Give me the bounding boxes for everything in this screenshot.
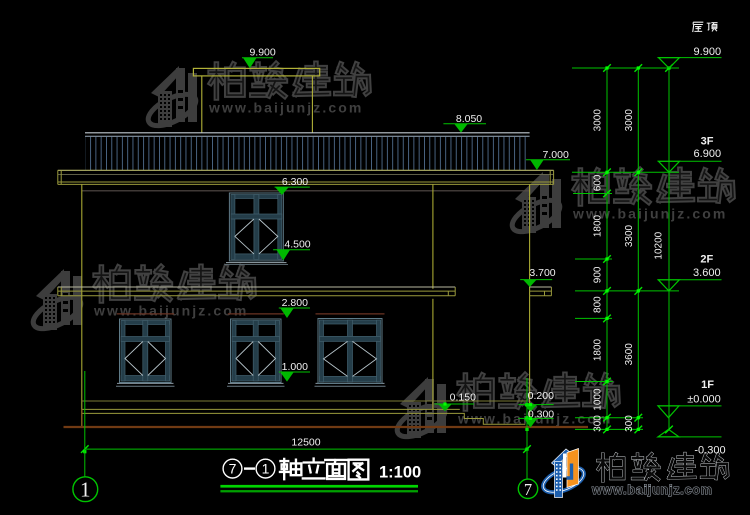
svg-text:6.900: 6.900 xyxy=(694,148,722,160)
svg-text:300: 300 xyxy=(624,415,635,432)
svg-text:9.900: 9.900 xyxy=(249,46,275,58)
svg-text:900: 900 xyxy=(593,266,604,283)
svg-text:2F: 2F xyxy=(700,254,713,266)
svg-text:1: 1 xyxy=(262,461,270,477)
svg-text:2.800: 2.800 xyxy=(282,297,308,309)
svg-text:3600: 3600 xyxy=(624,343,635,366)
svg-text:7: 7 xyxy=(229,461,237,477)
svg-text:1:100: 1:100 xyxy=(379,463,421,481)
svg-text:3.700: 3.700 xyxy=(529,267,555,279)
svg-text:3F: 3F xyxy=(701,136,714,148)
svg-text:3000: 3000 xyxy=(624,109,635,132)
svg-text:1.000: 1.000 xyxy=(282,361,308,373)
svg-text:10200: 10200 xyxy=(654,231,665,259)
svg-text:300: 300 xyxy=(593,415,604,432)
svg-text:12500: 12500 xyxy=(291,436,320,448)
svg-text:6.300: 6.300 xyxy=(282,176,308,188)
svg-text:3000: 3000 xyxy=(593,109,604,132)
svg-text:0.200: 0.200 xyxy=(528,390,554,402)
svg-text:7: 7 xyxy=(524,480,532,499)
svg-text:±0.000: ±0.000 xyxy=(687,393,721,405)
svg-text:3300: 3300 xyxy=(624,224,635,247)
svg-text:7.000: 7.000 xyxy=(543,149,569,161)
svg-text:-0.300: -0.300 xyxy=(694,445,725,457)
svg-text:800: 800 xyxy=(593,296,604,313)
svg-text:1F: 1F xyxy=(701,379,714,391)
svg-text:1: 1 xyxy=(80,478,91,502)
svg-text:4.500: 4.500 xyxy=(284,238,310,250)
svg-text:3.600: 3.600 xyxy=(693,267,721,279)
svg-text:9.900: 9.900 xyxy=(694,46,722,58)
svg-text:www.baijunjz.com: www.baijunjz.com xyxy=(591,483,713,497)
svg-text:1800: 1800 xyxy=(593,214,604,237)
svg-text:1000: 1000 xyxy=(593,388,604,411)
svg-text:0.150: 0.150 xyxy=(450,391,476,403)
svg-text:600: 600 xyxy=(593,174,604,191)
svg-text:1800: 1800 xyxy=(593,338,604,361)
